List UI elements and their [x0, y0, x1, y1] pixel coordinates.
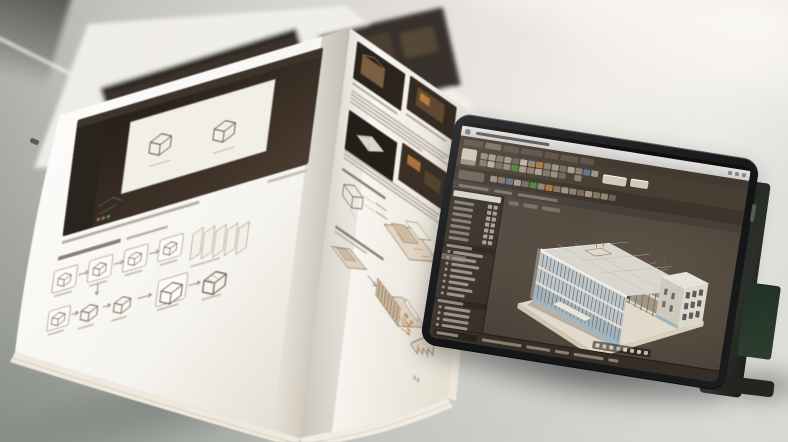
status-text-blob [526, 345, 550, 352]
window-control-button[interactable] [728, 171, 733, 176]
ribbon-tool-icon[interactable] [536, 161, 544, 168]
ribbon-tool-icon[interactable] [558, 172, 566, 179]
ribbon-tool-icon[interactable] [519, 165, 527, 172]
ribbon-tool-icon[interactable] [514, 179, 522, 186]
status-text-blob [574, 353, 604, 361]
window-controls[interactable] [728, 171, 746, 178]
view-control-icon[interactable] [595, 343, 600, 348]
ribbon-tool-icon[interactable] [528, 160, 536, 167]
ribbon-tool-icon[interactable] [575, 167, 583, 174]
ribbon-tool-icon[interactable] [600, 193, 608, 200]
ribbon-tool-icon[interactable] [544, 162, 552, 169]
view-control-icon[interactable] [623, 347, 628, 352]
view-tab[interactable] [433, 329, 478, 343]
ribbon-tool-icon[interactable] [577, 189, 585, 196]
context-panel-chip[interactable] [458, 169, 485, 182]
photo-scene: A4 [0, 0, 788, 442]
ribbon-tool-icon[interactable] [512, 157, 520, 164]
ribbon-tool-icon[interactable] [495, 162, 503, 169]
ribbon-tool-icon[interactable] [498, 177, 506, 184]
status-text-blob [555, 350, 569, 355]
ribbon-tool-icon[interactable] [479, 159, 487, 166]
ribbon-tool-icon[interactable] [537, 183, 545, 190]
status-text-blob [608, 358, 618, 363]
ribbon-tool-icon[interactable] [490, 176, 498, 183]
tablet [420, 112, 761, 391]
ribbon-tool-icon[interactable] [503, 163, 511, 170]
ribbon-tool-icon[interactable] [521, 181, 529, 188]
highlighted-tool-button[interactable] [602, 174, 627, 187]
properties-rows [444, 198, 502, 248]
ribbon-tool-icon[interactable] [480, 152, 488, 159]
ribbon-tool-icon[interactable] [520, 159, 528, 166]
ribbon-tool-icon[interactable] [569, 188, 577, 195]
ribbon-tool-icon[interactable] [567, 166, 575, 173]
ribbon-tool-icon[interactable] [553, 186, 561, 193]
ribbon-tool-icon[interactable] [591, 170, 599, 177]
ribbon-tool-icon[interactable] [608, 194, 616, 201]
ribbon-tool-icon[interactable] [566, 173, 574, 180]
window-control-button[interactable] [742, 173, 747, 178]
ribbon-tool-icon[interactable] [504, 156, 512, 163]
app-icon [465, 129, 471, 135]
ribbon-tool-icon[interactable] [511, 164, 519, 171]
ribbon-tool-icon[interactable] [545, 184, 553, 191]
view-control-icon[interactable] [637, 350, 642, 355]
ribbon-tool-icon[interactable] [527, 167, 535, 174]
highlighted-tool-button[interactable] [630, 179, 649, 190]
ribbon-tool-icon[interactable] [561, 187, 569, 194]
ribbon-tool-icon[interactable] [550, 170, 558, 177]
ribbon-tool-icon[interactable] [535, 168, 543, 175]
option-label [494, 189, 512, 195]
modify-tool-button[interactable] [460, 148, 477, 166]
view-control-icon[interactable] [630, 348, 635, 353]
project-browser-tree [435, 247, 494, 303]
ribbon-tool-icon[interactable] [488, 154, 496, 161]
viewport-control-chip[interactable] [507, 200, 520, 208]
ribbon-tool-icon[interactable] [583, 169, 591, 176]
window-control-button[interactable] [735, 172, 740, 177]
view-control-icon[interactable] [616, 346, 621, 351]
ribbon-tool-icon[interactable] [496, 155, 504, 162]
view-control-icon[interactable] [644, 351, 649, 356]
ribbon-tool-icon[interactable] [506, 178, 514, 185]
tablet-screen [429, 122, 752, 383]
ribbon-tool-icon[interactable] [529, 182, 537, 189]
ribbon-tool-icon[interactable] [551, 164, 559, 171]
status-text-blob [482, 338, 522, 347]
ribbon-tool-icon[interactable] [487, 160, 495, 167]
ribbon-tool-icon[interactable] [585, 191, 593, 198]
ribbon-tool-icon[interactable] [559, 165, 567, 172]
ribbon-tool-icon[interactable] [542, 169, 550, 176]
ribbon-tool-icon[interactable] [574, 174, 582, 181]
ribbon-tool-icon[interactable] [593, 192, 601, 199]
view-control-icon[interactable] [602, 344, 607, 349]
view-control-icon[interactable] [609, 345, 614, 350]
